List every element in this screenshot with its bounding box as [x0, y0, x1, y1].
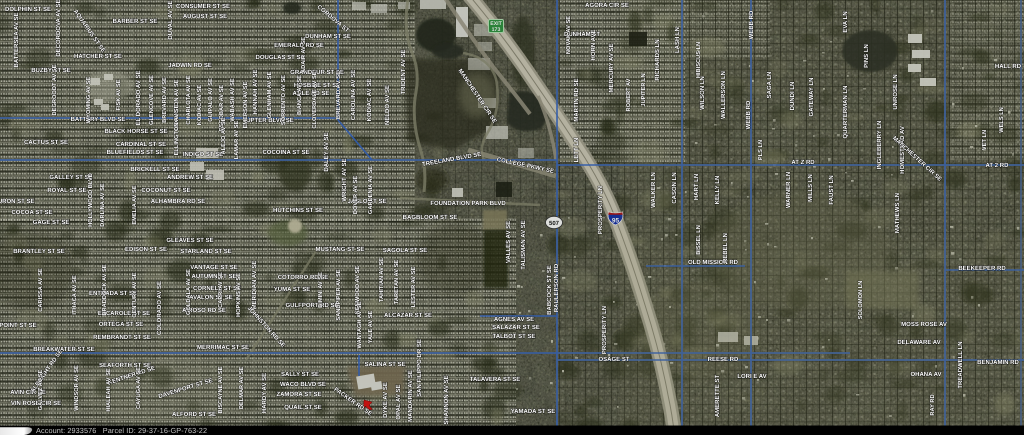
svg-text:EDISON ST SE: EDISON ST SE — [125, 246, 167, 253]
svg-text:VANTAGE ST SE: VANTAGE ST SE — [190, 264, 237, 271]
svg-text:LETT LN: LETT LN — [573, 138, 580, 163]
svg-text:SALINA ST SE: SALINA ST SE — [364, 361, 405, 368]
svg-text:YAMADA ST SE: YAMADA ST SE — [511, 408, 556, 415]
svg-text:WABASH AV SE: WABASH AV SE — [230, 78, 236, 121]
svg-text:WANTAGH AV SE: WANTAGH AV SE — [357, 301, 363, 348]
svg-text:BATTERY BLVD SE: BATTERY BLVD SE — [71, 116, 126, 123]
svg-text:WACO BLVD SE: WACO BLVD SE — [280, 381, 326, 388]
svg-text:SEAFORTH ST SE: SEAFORTH ST SE — [99, 362, 151, 369]
svg-text:DYKE AV SE: DYKE AV SE — [382, 382, 389, 418]
svg-text:TRIDENT AV SE: TRIDENT AV SE — [400, 49, 407, 94]
svg-text:BREAKWATER ST SE: BREAKWATER ST SE — [33, 346, 95, 353]
svg-text:FOUNDATION PARK BLVD: FOUNDATION PARK BLVD — [430, 200, 506, 207]
svg-text:ROYAL ST SE: ROYAL ST SE — [47, 187, 86, 194]
svg-text:ALFORD ST SE: ALFORD ST SE — [172, 411, 216, 418]
svg-text:Account: 2933576 Parcel ID:: Account: 2933576 Parcel ID: 29-37-16-GP-… — [36, 426, 207, 435]
svg-text:ITHACA AV SE: ITHACA AV SE — [72, 275, 78, 314]
svg-text:ALEJO AV SE: ALEJO AV SE — [221, 117, 227, 154]
svg-text:VALLES AV SE: VALLES AV SE — [505, 221, 512, 263]
svg-text:ADAIR AV SE: ADAIR AV SE — [301, 37, 307, 73]
svg-text:MERCURY AV SE: MERCURY AV SE — [608, 43, 615, 92]
svg-text:EL DORADO AV SE: EL DORADO AV SE — [135, 71, 142, 126]
svg-text:GLENCOVE AV SE: GLENCOVE AV SE — [149, 75, 155, 125]
svg-text:CAPRI AV SE: CAPRI AV SE — [218, 272, 224, 308]
svg-text:COLORADO AV SE: COLORADO AV SE — [156, 281, 163, 335]
svg-text:KELLY LN: KELLY LN — [714, 176, 721, 205]
svg-text:AT 2 RD: AT 2 RD — [986, 162, 1010, 169]
svg-text:REBEL LN: REBEL LN — [722, 233, 729, 263]
svg-text:SORRENTO AV SE: SORRENTO AV SE — [281, 75, 287, 125]
svg-text:BARBER ST SE: BARBER ST SE — [113, 18, 158, 25]
svg-text:VIN ROSE CIR SE: VIN ROSE CIR SE — [11, 400, 61, 407]
svg-text:BIANCA AV SE: BIANCA AV SE — [297, 75, 303, 115]
svg-text:SAGA LN: SAGA LN — [766, 72, 773, 99]
svg-text:BREVARD AV SE: BREVARD AV SE — [335, 71, 342, 119]
svg-text:TALISMAN AV SE: TALISMAN AV SE — [520, 220, 527, 270]
svg-text:RAY RD: RAY RD — [930, 394, 936, 415]
svg-text:SAGOLA ST SE: SAGOLA ST SE — [383, 247, 427, 254]
svg-text:WALLERSON LN: WALLERSON LN — [720, 71, 727, 119]
svg-text:AGORA CIR SE: AGORA CIR SE — [585, 2, 629, 9]
svg-text:JADWIN RD SE: JADWIN RD SE — [168, 62, 212, 69]
svg-text:BABCOCK ST SE: BABCOCK ST SE — [546, 265, 553, 315]
svg-text:POINT ST SE: POINT ST SE — [0, 322, 37, 329]
svg-text:DEGROODT AV SE: DEGROODT AV SE — [52, 64, 58, 115]
svg-text:GALVEZ AV SE: GALVEZ AV SE — [38, 369, 44, 410]
svg-text:TAHITIAN AV SE: TAHITIAN AV SE — [379, 258, 385, 302]
svg-text:BLACK HORSE ST SE: BLACK HORSE ST SE — [104, 128, 167, 135]
svg-text:HUTCHINS ST SE: HUTCHINS ST SE — [273, 207, 323, 214]
svg-text:BRICKELL ST SE: BRICKELL ST SE — [130, 166, 179, 173]
svg-text:BRADDOCK AV SE: BRADDOCK AV SE — [102, 264, 108, 315]
svg-text:AMERETTE ST: AMERETTE ST — [714, 375, 721, 418]
svg-text:BEEKEEPER RD: BEEKEEPER RD — [958, 265, 1006, 272]
svg-text:CACTUS ST SE: CACTUS ST SE — [24, 139, 68, 146]
svg-text:YALE AV SE: YALE AV SE — [368, 310, 374, 343]
svg-text:ROBERT AV: ROBERT AV — [626, 78, 632, 111]
svg-text:ANDREW ST SE: ANDREW ST SE — [167, 174, 213, 181]
svg-text:WEBB RD: WEBB RD — [745, 100, 752, 129]
svg-text:HARDY AV SE: HARDY AV SE — [261, 373, 268, 413]
svg-text:GLEAVES ST SE: GLEAVES ST SE — [166, 237, 213, 244]
svg-text:ELLINGTON AV SE: ELLINGTON AV SE — [174, 104, 180, 155]
svg-text:TALAVERA ST SE: TALAVERA ST SE — [470, 376, 521, 383]
svg-text:CAYUGA AV SE: CAYUGA AV SE — [136, 367, 142, 409]
svg-text:INDIGO ST SE: INDIGO ST SE — [183, 151, 223, 158]
svg-text:SALAZAR ST SE: SALAZAR ST SE — [492, 324, 540, 331]
svg-text:BATTERSEA AV SE: BATTERSEA AV SE — [13, 12, 20, 67]
svg-text:CONSUMER ST SE: CONSUMER ST SE — [176, 3, 230, 10]
svg-text:LORI E AV: LORI E AV — [737, 373, 766, 380]
svg-text:KODIAC AV SE: KODIAC AV SE — [366, 79, 373, 122]
svg-text:AT Z RD: AT Z RD — [791, 159, 815, 166]
svg-text:ALCAZAR ST SE: ALCAZAR ST SE — [384, 312, 432, 319]
svg-text:KODIAC AV SE: KODIAC AV SE — [197, 85, 203, 126]
svg-text:HALL RD: HALL RD — [995, 63, 1022, 70]
svg-text:CARISSA AV SE: CARISSA AV SE — [38, 268, 44, 312]
svg-text:VET LN: VET LN — [982, 130, 988, 150]
svg-text:SALLY ST SE: SALLY ST SE — [281, 371, 319, 378]
svg-text:SOLOMON LN: SOLOMON LN — [858, 281, 864, 320]
svg-text:DUNDI LN: DUNDI LN — [789, 82, 796, 111]
svg-text:DELMAR AV SE: DELMAR AV SE — [239, 367, 245, 410]
svg-text:BLUEFIELDS ST SE: BLUEFIELDS ST SE — [107, 149, 164, 156]
svg-text:HART LN: HART LN — [693, 174, 700, 200]
svg-text:BIMINI AV SE: BIMINI AV SE — [318, 272, 324, 308]
svg-text:QUARTERMAN LN: QUARTERMAN LN — [842, 86, 849, 139]
svg-text:HANNAH AV SE: HANNAH AV SE — [252, 69, 259, 114]
svg-text:FAUST LN: FAUST LN — [828, 175, 835, 204]
svg-text:PLS LN: PLS LN — [758, 140, 764, 160]
svg-text:MARTIN RD SE: MARTIN RD SE — [573, 78, 580, 121]
svg-text:WALKER LN: WALKER LN — [650, 172, 657, 208]
svg-text:HATCHER ST SE: HATCHER ST SE — [74, 53, 122, 60]
svg-text:RICHARDS LN: RICHARDS LN — [654, 39, 661, 80]
svg-text:WYOMING AV SE: WYOMING AV SE — [86, 77, 92, 124]
svg-text:OHANA AV: OHANA AV — [910, 371, 941, 378]
svg-text:TARETAN AV SE: TARETAN AV SE — [394, 260, 400, 305]
svg-text:LESTER AV SE: LESTER AV SE — [411, 267, 417, 308]
svg-text:DUNHAM ST SE: DUNHAM ST SE — [305, 33, 351, 40]
svg-text:BREVARD AV SE: BREVARD AV SE — [162, 77, 168, 123]
svg-text:DELAWARE AV: DELAWARE AV — [897, 339, 940, 346]
svg-text:REESE RD: REESE RD — [708, 356, 739, 363]
svg-text:EMERALD RD SE: EMERALD RD SE — [274, 42, 324, 49]
svg-text:ZAMORA ST SE: ZAMORA ST SE — [276, 391, 321, 398]
svg-text:AUTUMN ST SE: AUTUMN ST SE — [192, 273, 237, 280]
svg-text:RAULERSON RD: RAULERSON RD — [553, 263, 560, 312]
svg-text:GATEWAY LN: GATEWAY LN — [808, 78, 815, 117]
svg-text:OPAL AV SE: OPAL AV SE — [395, 384, 402, 419]
svg-text:PROSPERITY LN: PROSPERITY LN — [597, 186, 604, 234]
svg-text:MUSTANG ST SE: MUSTANG ST SE — [316, 246, 365, 253]
svg-text:FISK AV SE: FISK AV SE — [116, 79, 122, 110]
svg-text:AUGUST ST SE: AUGUST ST SE — [183, 13, 227, 20]
svg-text:GARDENIA AV SE: GARDENIA AV SE — [368, 166, 374, 214]
svg-text:WEBB RD: WEBB RD — [748, 10, 755, 39]
svg-text:NOVAK AV SE: NOVAK AV SE — [566, 16, 572, 54]
svg-text:STARLAND ST SE: STARLAND ST SE — [180, 248, 232, 255]
svg-text:COCONUT ST SE: COCONUT ST SE — [141, 187, 190, 194]
svg-text:WELS LN: WELS LN — [999, 107, 1005, 133]
svg-text:BRANTLEY ST SE: BRANTLEY ST SE — [13, 248, 65, 255]
svg-text:ENTRADA ST SE: ENTRADA ST SE — [89, 290, 137, 297]
svg-text:HIBISCUS LN: HIBISCUS LN — [696, 42, 702, 78]
svg-text:WILSON LN: WILSON LN — [699, 76, 706, 110]
svg-text:QUAIL ST SE: QUAIL ST SE — [284, 404, 322, 411]
svg-text:GLENHAM AV SE: GLENHAM AV SE — [267, 71, 273, 118]
svg-text:WARNER LN: WARNER LN — [785, 172, 792, 208]
svg-text:CENTURY AV SE: CENTURY AV SE — [132, 272, 138, 317]
svg-text:CARDINAL ST SE: CARDINAL ST SE — [116, 141, 166, 148]
svg-text:CLOVERDALE AV SE: CLOVERDALE AV SE — [312, 71, 318, 128]
svg-text:BISSEL LN: BISSEL LN — [696, 225, 702, 255]
svg-text:LAMAR AV SE: LAMAR AV SE — [234, 121, 240, 160]
svg-text:GUIPALO AV SE: GUIPALO AV SE — [208, 78, 214, 122]
svg-text:DARLINA AV SE: DARLINA AV SE — [100, 183, 106, 227]
svg-text:MERRIMAC ST SE: MERRIMAC ST SE — [197, 344, 249, 351]
svg-text:HOPKINS AV SE: HOPKINS AV SE — [236, 273, 242, 317]
svg-text:SAN FILIPPO DR SE: SAN FILIPPO DR SE — [416, 339, 423, 397]
svg-text:TALBOT ST SE: TALBOT ST SE — [493, 333, 536, 340]
svg-text:ORTEGA ST SE: ORTEGA ST SE — [99, 321, 143, 328]
svg-text:MOSS ROSE AV: MOSS ROSE AV — [901, 321, 947, 328]
svg-text:MATHEWS LN: MATHEWS LN — [894, 193, 901, 233]
svg-text:GAGE ST SE: GAGE ST SE — [33, 219, 70, 226]
svg-text:GULFPORT RD SE: GULFPORT RD SE — [285, 302, 338, 309]
svg-text:UNROSE LN: UNROSE LN — [892, 74, 899, 109]
svg-text:WINDSOR AV SE: WINDSOR AV SE — [74, 365, 80, 411]
svg-text:COCOA ST SE: COCOA ST SE — [11, 209, 52, 216]
svg-text:CHARLOTA AV SE: CHARLOTA AV SE — [186, 75, 192, 124]
svg-text:CASON LN: CASON LN — [671, 172, 678, 203]
svg-text:COCOINA ST SE: COCOINA ST SE — [262, 149, 309, 156]
svg-text:BISCAYNE AV SE: BISCAYNE AV SE — [218, 366, 224, 413]
svg-text:WRIGHT AV SE: WRIGHT AV SE — [341, 158, 348, 201]
svg-text:HIALEAH AV SE: HIALEAH AV SE — [106, 368, 112, 411]
svg-text:BAGBLOOM ST SE: BAGBLOOM ST SE — [403, 214, 458, 221]
svg-text:OSAGE ST: OSAGE ST — [598, 356, 629, 363]
svg-text:EVA LN: EVA LN — [842, 11, 849, 32]
svg-text:DECORDOVA AV SE: DECORDOVA AV SE — [55, 0, 62, 57]
svg-text:HOLLYWOOD BLVD: HOLLYWOOD BLVD — [88, 173, 94, 227]
svg-text:LASH LN: LASH LN — [674, 27, 681, 53]
svg-text:ALHAMBRA RD SE: ALHAMBRA RD SE — [151, 198, 205, 205]
svg-text:HURON ST SE: HURON ST SE — [0, 198, 35, 205]
svg-text:INGLEBERRY LN: INGLEBERRY LN — [876, 121, 883, 170]
svg-text:EMELIA AV SE: EMELIA AV SE — [132, 185, 138, 224]
svg-text:JUPITER LN: JUPITER LN — [641, 73, 647, 106]
svg-text:HORN AVE: HORN AVE — [590, 29, 597, 60]
svg-text:MILLS LN: MILLS LN — [807, 174, 814, 202]
svg-text:BUZBY ST SE: BUZBY ST SE — [31, 67, 71, 74]
svg-text:YUMA ST SE: YUMA ST SE — [274, 286, 310, 293]
svg-text:TREADWELL LN: TREADWELL LN — [957, 341, 964, 388]
svg-text:DALEY AV SE: DALEY AV SE — [323, 132, 330, 171]
svg-text:NELDO AV SE: NELDO AV SE — [384, 85, 391, 125]
svg-text:CAROLINA AV SE: CAROLINA AV SE — [350, 70, 357, 120]
svg-text:GALLEY ST SE: GALLEY ST SE — [49, 174, 92, 181]
svg-text:DOLPHIN ST SE: DOLPHIN ST SE — [5, 6, 51, 13]
svg-text:DOUGLAS ST SE: DOUGLAS ST SE — [255, 54, 304, 61]
svg-text:PINS LN: PINS LN — [863, 44, 870, 68]
svg-text:MANDARIN AV SE: MANDARIN AV SE — [407, 370, 414, 422]
svg-text:PROSPERITY LN: PROSPERITY LN — [601, 306, 608, 354]
svg-text:OLD MISSION RD: OLD MISSION RD — [688, 259, 739, 266]
svg-text:CORNELL ST SE: CORNELL ST SE — [193, 285, 241, 292]
svg-text:GOLDALA AV SE: GOLDALA AV SE — [186, 269, 192, 315]
svg-text:EMERSON AV SE: EMERSON AV SE — [243, 81, 249, 128]
svg-text:BENJAMIN RD: BENJAMIN RD — [977, 359, 1019, 366]
svg-text:REMBRANDT ST SE: REMBRANDT ST SE — [93, 334, 151, 341]
svg-text:MERIDIAN AV SE: MERIDIAN AV SE — [251, 261, 258, 310]
svg-text:DUVAL AV SE: DUVAL AV SE — [167, 0, 174, 39]
svg-text:AVALON ST SE: AVALON ST SE — [189, 294, 232, 301]
svg-text:SHANNON AV SE: SHANNON AV SE — [443, 375, 450, 424]
svg-text:DOVER AV SE: DOVER AV SE — [353, 176, 359, 214]
svg-text:AGNES AV SE: AGNES AV SE — [494, 316, 534, 323]
svg-text:SANDPIPER AV SE: SANDPIPER AV SE — [336, 269, 342, 320]
